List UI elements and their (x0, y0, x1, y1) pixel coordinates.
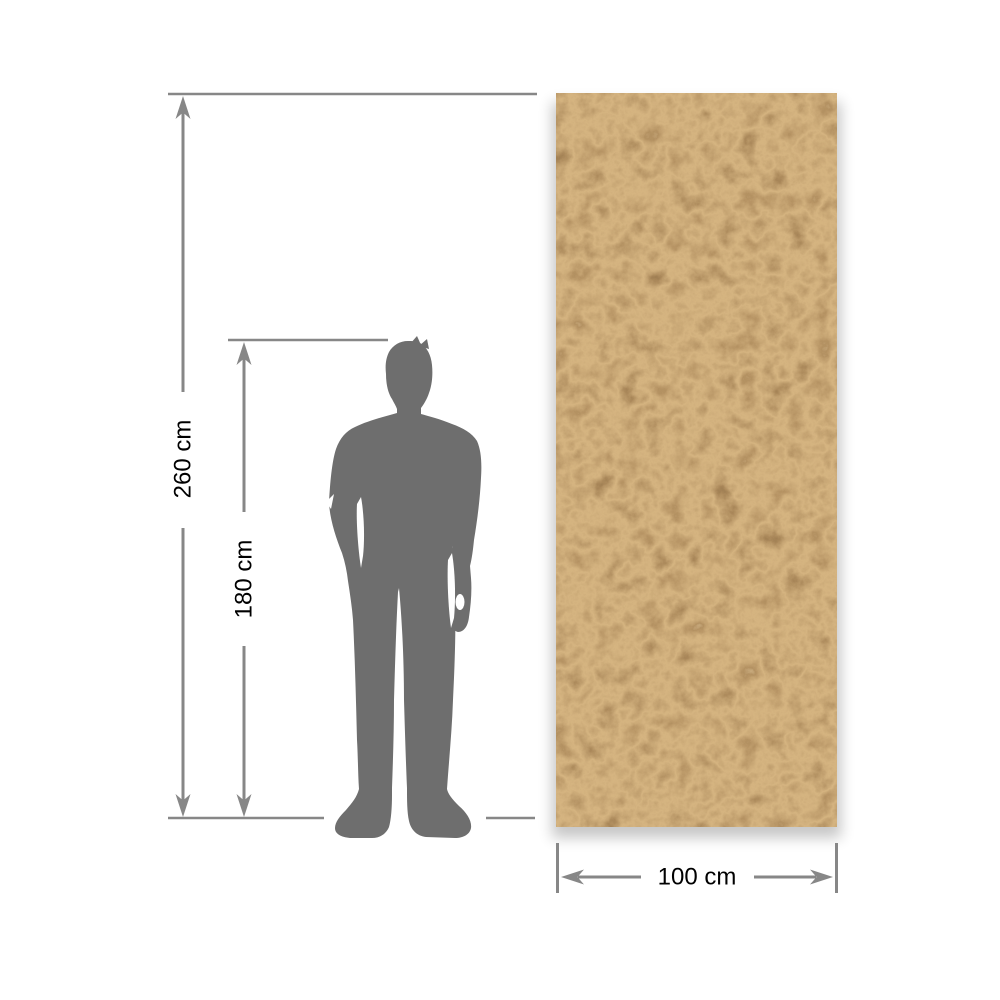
panel-width-dimension: 100 cm (558, 843, 837, 893)
total-height-label: 260 cm (170, 420, 197, 499)
person-height-label: 180 cm (231, 540, 258, 619)
thumb-gap-cut (456, 594, 465, 610)
person-silhouette (326, 336, 481, 838)
size-guide-canvas: 260 cm 180 cm 100 cm (0, 0, 1000, 1000)
person-hair-spike (410, 336, 421, 345)
size-guide-illustration: 260 cm 180 cm 100 cm (0, 0, 1000, 1000)
textured-panel (556, 93, 837, 827)
panel-width-label: 100 cm (658, 864, 737, 891)
person-body (329, 341, 481, 838)
